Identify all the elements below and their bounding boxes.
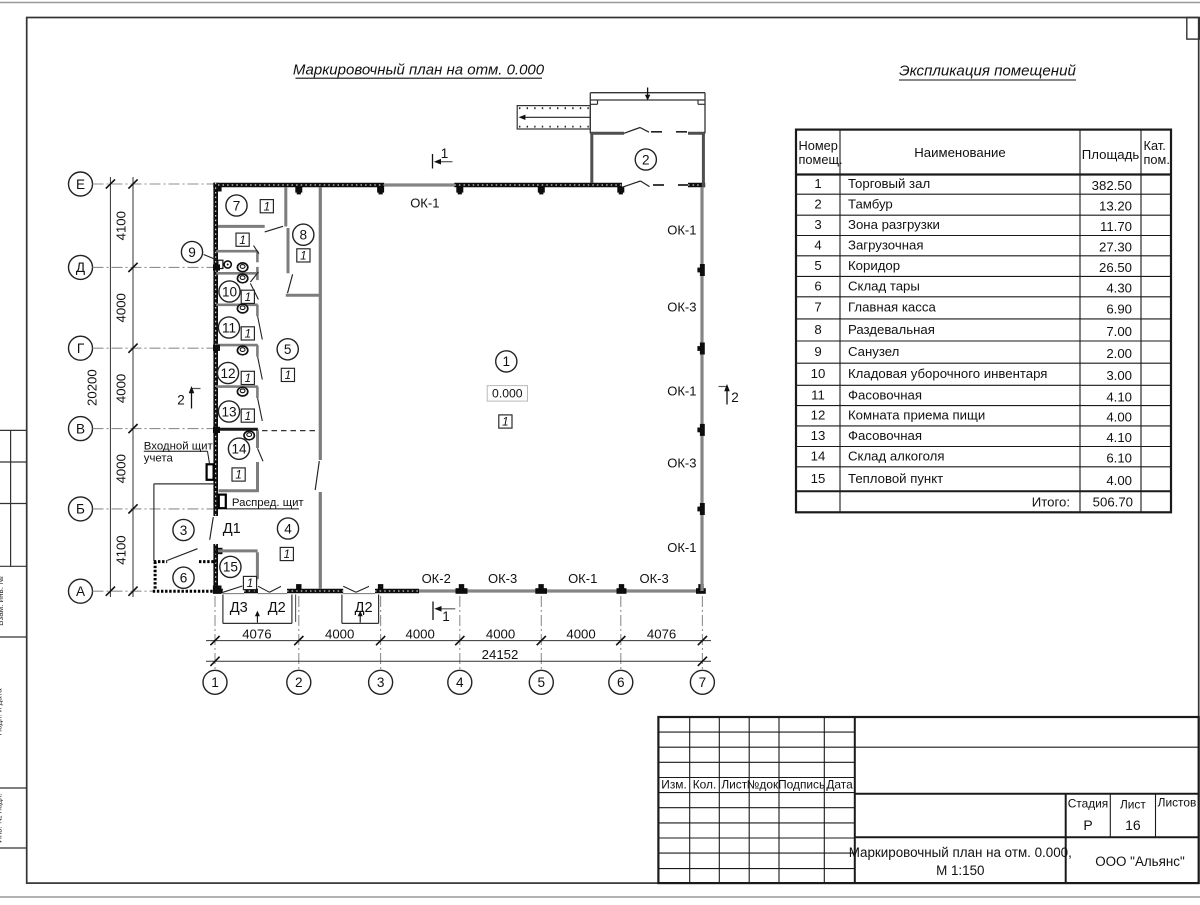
svg-text:5: 5	[284, 342, 292, 357]
svg-text:Склад алкоголя: Склад алкоголя	[848, 448, 945, 463]
svg-text:№док.: №док.	[747, 778, 782, 792]
svg-text:Д3: Д3	[230, 600, 248, 616]
svg-text:Д2: Д2	[268, 600, 286, 616]
svg-text:Маркировочный план на отм. 0.0: Маркировочный план на отм. 0.000,	[849, 845, 1072, 860]
svg-text:учета: учета	[144, 453, 174, 465]
svg-text:Дата: Дата	[826, 778, 853, 792]
svg-text:ОК-1: ОК-1	[667, 223, 696, 238]
svg-text:6.10: 6.10	[1106, 450, 1132, 465]
svg-text:7.00: 7.00	[1106, 324, 1132, 339]
svg-text:6: 6	[180, 571, 188, 586]
svg-text:2: 2	[814, 197, 821, 212]
svg-text:20200: 20200	[85, 369, 100, 406]
svg-text:Торговый зал: Торговый зал	[848, 176, 930, 191]
svg-text:Наименование: Наименование	[914, 145, 1005, 160]
svg-text:Г: Г	[77, 341, 85, 356]
svg-text:15: 15	[223, 560, 238, 575]
svg-text:Инв. № подл.: Инв. № подл.	[0, 793, 4, 843]
svg-text:4076: 4076	[242, 626, 271, 641]
svg-text:11: 11	[222, 320, 236, 335]
svg-text:Номер: Номер	[799, 138, 838, 153]
svg-text:3: 3	[377, 675, 385, 690]
svg-text:1: 1	[245, 328, 251, 341]
svg-text:1: 1	[239, 234, 245, 247]
svg-text:4076: 4076	[647, 626, 676, 641]
svg-text:Зона разгрузки: Зона разгрузки	[848, 217, 940, 232]
svg-text:1: 1	[300, 250, 306, 263]
svg-text:6: 6	[617, 675, 625, 690]
svg-text:3: 3	[814, 217, 821, 232]
svg-text:0.000: 0.000	[492, 387, 523, 401]
svg-text:ОК-3: ОК-3	[667, 299, 696, 314]
svg-text:1: 1	[247, 577, 253, 590]
svg-text:2.00: 2.00	[1106, 346, 1132, 361]
svg-text:1: 1	[235, 469, 241, 482]
svg-text:15: 15	[811, 471, 826, 486]
svg-text:Лист: Лист	[721, 778, 747, 792]
svg-text:3: 3	[180, 523, 188, 538]
svg-text:ОК-1: ОК-1	[410, 195, 439, 210]
svg-text:6: 6	[814, 278, 821, 293]
svg-text:9: 9	[188, 245, 196, 260]
svg-text:10: 10	[811, 366, 826, 381]
svg-text:Коридор: Коридор	[848, 258, 900, 273]
svg-text:12: 12	[220, 366, 235, 381]
svg-text:ОК-1: ОК-1	[568, 571, 597, 586]
svg-text:Загрузочная: Загрузочная	[848, 237, 923, 252]
svg-text:Экспликация помещений: Экспликация помещений	[899, 63, 1076, 80]
svg-text:Склад тары: Склад тары	[848, 278, 920, 293]
svg-text:помещ.: помещ.	[799, 152, 843, 167]
svg-text:8: 8	[300, 228, 308, 243]
svg-text:1: 1	[502, 416, 508, 429]
svg-text:4000: 4000	[114, 374, 129, 403]
svg-text:ОК-3: ОК-3	[639, 571, 668, 586]
svg-text:Входной щит: Входной щит	[144, 440, 214, 452]
svg-text:Раздевальная: Раздевальная	[848, 322, 935, 337]
svg-text:4.00: 4.00	[1106, 410, 1132, 425]
svg-text:7: 7	[699, 675, 707, 690]
svg-text:ОК-3: ОК-3	[667, 455, 696, 470]
svg-text:1: 1	[211, 675, 219, 690]
svg-text:ОК-1: ОК-1	[667, 540, 696, 555]
svg-text:Санузел: Санузел	[848, 344, 899, 359]
svg-text:4000: 4000	[114, 454, 129, 483]
svg-text:27.30: 27.30	[1099, 239, 1132, 254]
svg-text:2: 2	[731, 390, 739, 405]
svg-text:Распред. щит: Распред. щит	[232, 497, 305, 509]
svg-text:3.00: 3.00	[1106, 368, 1132, 383]
svg-text:4000: 4000	[486, 626, 515, 641]
svg-text:ОК-3: ОК-3	[488, 571, 517, 586]
svg-text:6.90: 6.90	[1106, 302, 1132, 317]
svg-text:4.10: 4.10	[1106, 389, 1132, 404]
svg-text:Площадь: Площадь	[1082, 147, 1140, 162]
svg-text:1: 1	[441, 146, 449, 161]
svg-text:Р: Р	[1083, 817, 1092, 833]
svg-text:Подп. и дата: Подп. и дата	[0, 688, 4, 736]
svg-text:13.20: 13.20	[1099, 199, 1132, 214]
svg-text:Д2: Д2	[355, 600, 373, 616]
svg-text:1: 1	[245, 372, 251, 385]
svg-text:1: 1	[264, 200, 270, 213]
svg-text:ОК-1: ОК-1	[667, 383, 696, 398]
svg-text:1: 1	[285, 369, 291, 382]
svg-text:Фасовочная: Фасовочная	[848, 428, 922, 443]
svg-text:4.30: 4.30	[1106, 280, 1132, 295]
svg-text:14: 14	[231, 442, 247, 457]
svg-text:16: 16	[1125, 817, 1141, 833]
svg-text:ООО "Альянс": ООО "Альянс"	[1095, 854, 1185, 869]
svg-text:1: 1	[284, 548, 290, 561]
svg-text:13: 13	[811, 428, 826, 443]
svg-text:2: 2	[177, 393, 185, 408]
svg-text:Тамбур: Тамбур	[848, 197, 893, 212]
svg-text:Кат.: Кат.	[1144, 138, 1166, 153]
svg-text:М 1:150: М 1:150	[936, 863, 984, 878]
svg-text:506.70: 506.70	[1093, 494, 1133, 509]
svg-text:4000: 4000	[566, 626, 595, 641]
svg-text:13: 13	[221, 404, 236, 419]
svg-text:8: 8	[814, 322, 821, 337]
svg-text:4: 4	[814, 237, 821, 252]
svg-text:4100: 4100	[114, 535, 129, 564]
svg-text:4.00: 4.00	[1106, 473, 1132, 488]
svg-text:1: 1	[245, 410, 251, 423]
svg-text:4000: 4000	[406, 626, 435, 641]
svg-text:Кладовая уборочного инвентаря: Кладовая уборочного инвентаря	[848, 366, 1047, 381]
svg-text:Комната приема пищи: Комната приема пищи	[848, 408, 985, 423]
svg-text:4000: 4000	[325, 626, 354, 641]
svg-text:Б: Б	[76, 502, 85, 517]
svg-text:пом.: пом.	[1144, 152, 1170, 167]
svg-text:1: 1	[814, 176, 821, 191]
svg-text:Маркировочный план на отм. 0.0: Маркировочный план на отм. 0.000	[293, 62, 545, 79]
svg-text:ОК-2: ОК-2	[422, 571, 451, 586]
svg-text:382.50: 382.50	[1092, 178, 1132, 193]
svg-text:4.10: 4.10	[1106, 430, 1132, 445]
svg-text:Д: Д	[76, 260, 85, 275]
svg-text:Тепловой пункт: Тепловой пункт	[848, 471, 943, 486]
svg-text:Главная касса: Главная касса	[848, 300, 936, 315]
svg-text:Е: Е	[76, 177, 85, 192]
svg-text:1: 1	[442, 609, 450, 624]
svg-text:10: 10	[222, 284, 238, 299]
svg-text:Лист: Лист	[1120, 798, 1146, 812]
svg-text:1: 1	[245, 291, 251, 304]
svg-text:1: 1	[503, 354, 511, 369]
svg-text:12: 12	[811, 408, 826, 423]
svg-text:4: 4	[456, 675, 464, 690]
svg-text:Взам. инв. №: Взам. инв. №	[0, 576, 5, 626]
svg-text:7: 7	[814, 300, 821, 315]
svg-text:Д1: Д1	[223, 521, 241, 537]
svg-text:4: 4	[284, 521, 292, 536]
svg-text:2: 2	[295, 675, 303, 690]
svg-text:Изм.: Изм.	[661, 778, 686, 792]
svg-text:Подпись: Подпись	[778, 778, 825, 792]
svg-text:9: 9	[814, 344, 821, 359]
svg-text:11: 11	[811, 387, 825, 402]
svg-text:Кол.: Кол.	[693, 778, 717, 792]
svg-text:В: В	[76, 421, 85, 436]
svg-text:Итого:: Итого:	[1032, 494, 1070, 509]
svg-text:Листов: Листов	[1158, 796, 1197, 810]
svg-text:2: 2	[642, 152, 650, 167]
svg-text:24152: 24152	[482, 647, 519, 662]
svg-text:7: 7	[233, 198, 241, 213]
svg-text:26.50: 26.50	[1099, 260, 1132, 275]
svg-text:Фасовочная: Фасовочная	[848, 387, 922, 402]
svg-text:5: 5	[538, 675, 546, 690]
svg-text:11.70: 11.70	[1100, 219, 1132, 234]
svg-text:4000: 4000	[114, 293, 129, 322]
svg-text:14: 14	[811, 448, 826, 463]
svg-text:Стадия: Стадия	[1068, 797, 1109, 811]
svg-text:5: 5	[814, 258, 821, 273]
svg-text:4100: 4100	[114, 211, 129, 240]
svg-text:А: А	[76, 584, 86, 599]
